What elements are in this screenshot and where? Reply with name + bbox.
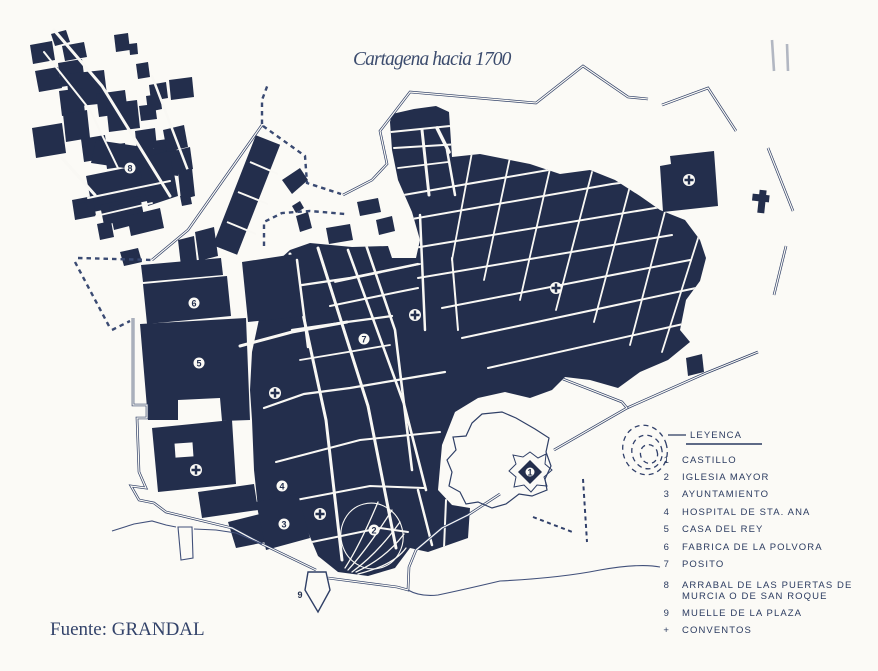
svg-text:CONVENTOS: CONVENTOS bbox=[682, 625, 752, 636]
svg-text:AYUNTAMIENTO: AYUNTAMIENTO bbox=[682, 489, 769, 500]
svg-text:+: + bbox=[663, 625, 670, 636]
svg-text:CASA DEL REY: CASA DEL REY bbox=[682, 524, 764, 535]
svg-text:4: 4 bbox=[664, 507, 670, 518]
svg-text:POSITO: POSITO bbox=[682, 559, 724, 570]
svg-text:7: 7 bbox=[664, 559, 670, 570]
svg-text:MUELLE DE LA PLAZA: MUELLE DE LA PLAZA bbox=[682, 608, 802, 619]
svg-text:MURCIA O DE SAN ROQUE: MURCIA O DE SAN ROQUE bbox=[682, 591, 828, 602]
svg-text:5: 5 bbox=[196, 359, 201, 369]
svg-text:6: 6 bbox=[191, 299, 196, 309]
svg-text:9: 9 bbox=[664, 608, 670, 619]
svg-text:6: 6 bbox=[664, 542, 670, 553]
svg-text:FABRICA DE LA POLVORA: FABRICA DE LA POLVORA bbox=[682, 542, 823, 553]
svg-text:2: 2 bbox=[664, 472, 670, 483]
svg-text:1: 1 bbox=[664, 455, 670, 466]
svg-text:Fuente: GRANDAL: Fuente: GRANDAL bbox=[50, 619, 205, 640]
svg-text:8: 8 bbox=[127, 164, 132, 174]
svg-text:HOSPITAL DE STA. ANA: HOSPITAL DE STA. ANA bbox=[682, 507, 810, 518]
svg-text:IGLESIA MAYOR: IGLESIA MAYOR bbox=[682, 472, 770, 483]
svg-text:8: 8 bbox=[664, 580, 670, 591]
svg-text:1: 1 bbox=[527, 468, 532, 478]
svg-text:Cartagena hacia 1700: Cartagena hacia 1700 bbox=[353, 49, 512, 70]
svg-text:4: 4 bbox=[279, 482, 284, 492]
svg-text:2: 2 bbox=[371, 526, 376, 536]
svg-text:5: 5 bbox=[664, 524, 670, 535]
svg-text:7: 7 bbox=[361, 335, 366, 345]
svg-text:ARRABAL DE LAS PUERTAS DE: ARRABAL DE LAS PUERTAS DE bbox=[682, 580, 852, 591]
svg-text:3: 3 bbox=[281, 520, 286, 530]
svg-text:9: 9 bbox=[297, 590, 302, 600]
svg-text:CASTILLO: CASTILLO bbox=[682, 455, 737, 466]
svg-text:3: 3 bbox=[664, 489, 670, 500]
svg-text:LEYENCA: LEYENCA bbox=[690, 430, 742, 441]
